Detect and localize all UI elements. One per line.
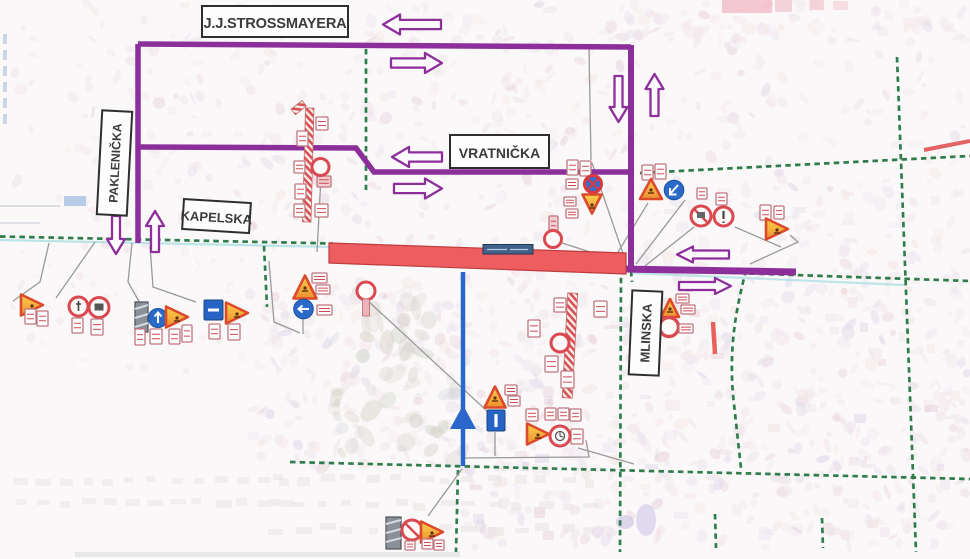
svg-text:J.J.STROSSMAYERA: J.J.STROSSMAYERA [203, 16, 347, 32]
svg-text:VRATNIČKA: VRATNIČKA [459, 144, 540, 161]
svg-text:MLINSKA: MLINSKA [637, 303, 655, 363]
